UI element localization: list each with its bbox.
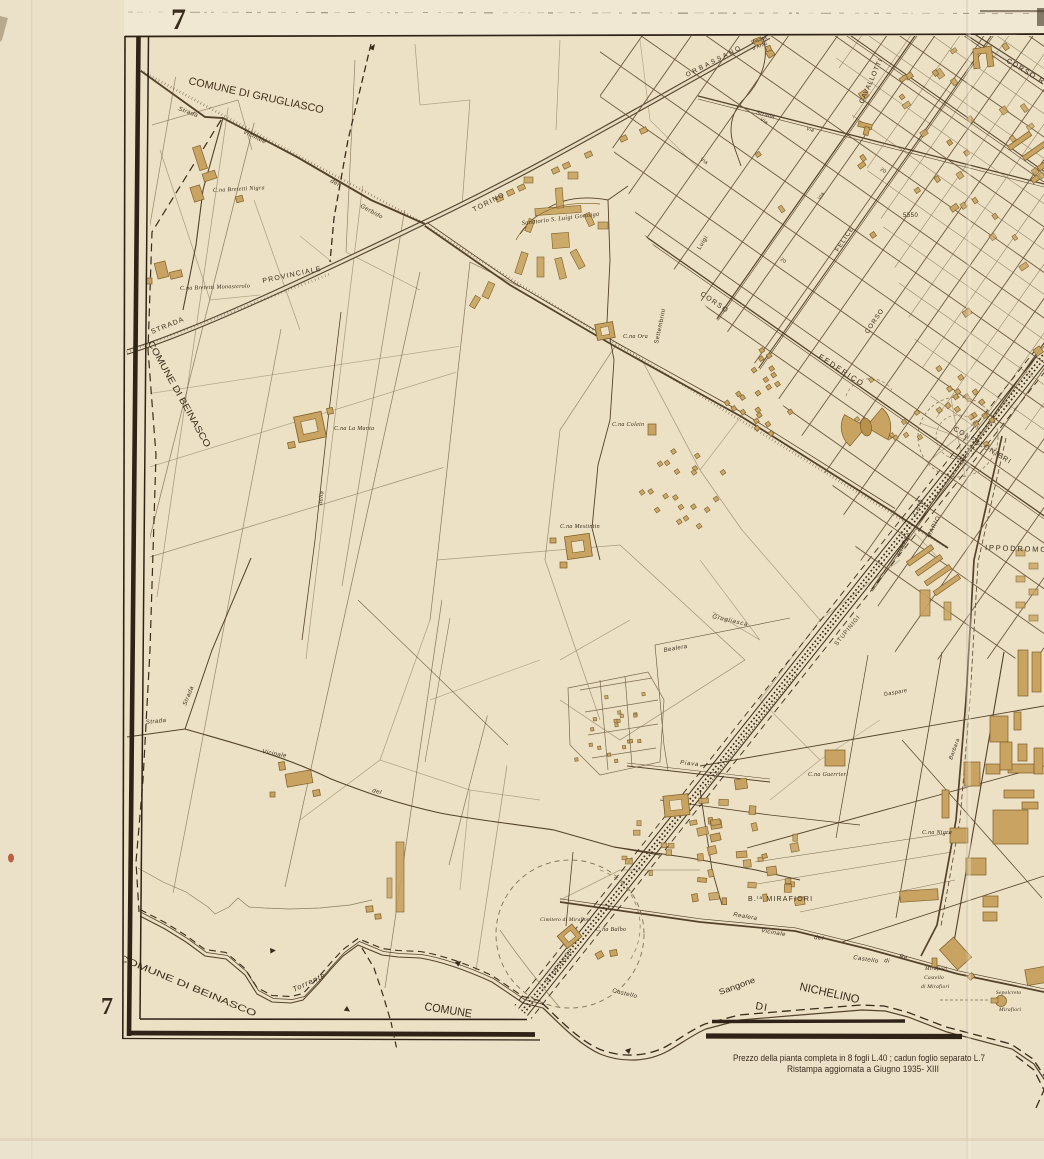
svg-text:di Mirafiori: di Mirafiori: [921, 983, 950, 990]
svg-text:Mirafiori: Mirafiori: [998, 1006, 1022, 1013]
svg-text:Ristampa aggiornata a Giugno 1: Ristampa aggiornata a Giugno 1935- XIII: [787, 1064, 939, 1074]
svg-text:C.na Mestintin: C.na Mestintin: [560, 524, 600, 530]
svg-text:C.na Colein: C.na Colein: [612, 422, 644, 428]
svg-text:DI: DI: [754, 1000, 768, 1014]
svg-text:Prezzo della pianta completa i: Prezzo della pianta completa in 8 fogli …: [733, 1053, 985, 1063]
svg-text:di: di: [884, 958, 891, 965]
svg-text:7: 7: [171, 3, 186, 36]
svg-text:Cimitero di Mirafiori: Cimitero di Mirafiori: [540, 916, 591, 923]
svg-text:7: 7: [101, 994, 113, 1020]
svg-text:Mirafiori: Mirafiori: [924, 965, 948, 972]
svg-text:C.na La Manta: C.na La Manta: [334, 426, 374, 432]
svg-text:C.na Balbo: C.na Balbo: [596, 927, 626, 933]
svg-text:C.na Guerrieri: C.na Guerrieri: [808, 772, 848, 778]
svg-text:C.na Ora: C.na Ora: [623, 334, 648, 340]
svg-text:Sepolcreto: Sepolcreto: [996, 990, 1021, 996]
svg-text:5550: 5550: [903, 213, 919, 219]
svg-text:C.na Nigra: C.na Nigra: [922, 830, 952, 836]
svg-text:Castello: Castello: [924, 975, 944, 981]
